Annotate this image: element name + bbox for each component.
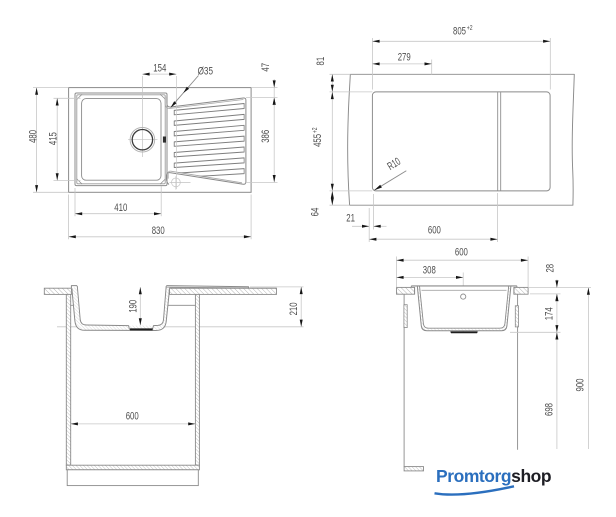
svg-text:279: 279 — [398, 52, 411, 64]
svg-text:210: 210 — [288, 302, 300, 315]
svg-text:805: 805 — [453, 25, 466, 37]
svg-text:81: 81 — [315, 57, 327, 66]
svg-text:308: 308 — [423, 265, 436, 277]
svg-text:600: 600 — [455, 246, 468, 258]
svg-text:698: 698 — [544, 403, 556, 416]
svg-text:900: 900 — [574, 379, 586, 392]
svg-text:Promtorgshop: Promtorgshop — [436, 466, 551, 486]
svg-text:600: 600 — [428, 224, 441, 236]
svg-text:21: 21 — [346, 212, 355, 224]
svg-text:64: 64 — [309, 208, 321, 217]
svg-text:174: 174 — [544, 307, 556, 320]
svg-text:Ø35: Ø35 — [198, 66, 213, 78]
svg-text:386: 386 — [260, 130, 272, 143]
svg-text:455: 455 — [312, 134, 324, 147]
svg-text:+2: +2 — [467, 23, 473, 32]
svg-text:600: 600 — [126, 410, 139, 422]
svg-text:480: 480 — [27, 130, 39, 143]
svg-text:415: 415 — [47, 132, 59, 145]
svg-text:+2: +2 — [310, 127, 319, 133]
svg-text:410: 410 — [114, 202, 127, 214]
svg-text:47: 47 — [260, 63, 272, 72]
svg-text:190: 190 — [128, 300, 140, 313]
svg-text:154: 154 — [153, 62, 166, 74]
svg-text:28: 28 — [545, 264, 557, 273]
svg-text:830: 830 — [152, 225, 165, 237]
